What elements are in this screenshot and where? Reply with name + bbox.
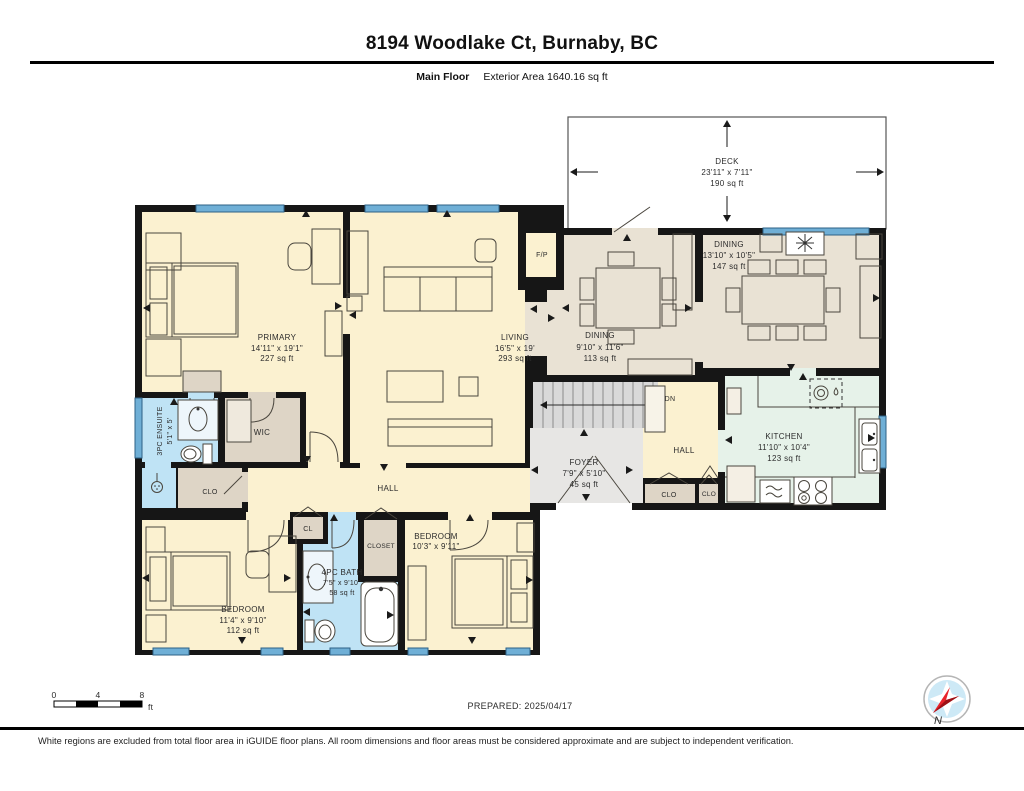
ensuite-toilet (181, 444, 212, 464)
kitchen-dims: 11'10" x 10'4" (758, 443, 810, 452)
bath-area: 58 sq ft (329, 590, 354, 597)
fireplace-label: F/P (536, 252, 548, 259)
foyer-dims: 7'9" x 5'10" (562, 469, 605, 478)
living-area: 293 sq ft (498, 354, 532, 363)
scale-tick-0: 0 (51, 690, 56, 700)
bathtub (361, 582, 398, 646)
compass-north-label: N (934, 715, 942, 727)
footer-divider (0, 727, 1024, 730)
prepared-date: PREPARED: 2025/04/17 (468, 701, 573, 711)
deck-dims: 23'11" x 7'11" (701, 168, 752, 177)
ceiling-fan-icon (786, 232, 824, 255)
hall-main-label: HALL (377, 484, 398, 493)
bedroom-left-area: 112 sq ft (227, 626, 260, 635)
shower-floor (142, 468, 176, 508)
primary-dims: 14'11" x 19'1" (251, 344, 303, 353)
bath-toilet (305, 620, 335, 642)
ensuite-dims: 5'1" x 5' (167, 418, 174, 445)
wic-label: WIC (254, 428, 270, 437)
compass-icon: N (924, 676, 970, 727)
bedroom-left-label: BEDROOM (221, 605, 264, 614)
clo-left-label: CLO (202, 489, 218, 496)
dining-large-label: DINING (714, 240, 744, 249)
bath-dims: 7'5" x 9'10" (323, 580, 361, 587)
dining-small-label: DINING (585, 331, 615, 340)
clo-left-floor (178, 468, 242, 508)
stairs-dn-label: DN (665, 396, 676, 403)
scale-unit: ft (148, 702, 154, 712)
scale-bar: 0 4 8 ft (51, 690, 153, 712)
floor-plan-page: 8194 Woodlake Ct, Burnaby, BC Main Floor… (0, 0, 1024, 791)
kitchen-label: KITCHEN (765, 432, 802, 441)
disclaimer-text: White regions are excluded from total fl… (38, 736, 988, 746)
scale-tick-4: 4 (95, 690, 100, 700)
living-label: LIVING (501, 333, 529, 342)
clo-b-label: CLO (702, 491, 716, 498)
deck-label: DECK (715, 157, 739, 166)
bath-label: 4PC BATH (322, 568, 363, 577)
bedroom-left-dims: 11'4" x 9'10" (219, 616, 266, 625)
deck-area: 190 sq ft (710, 179, 744, 188)
ensuite-label: 3PC ENSUITE (157, 406, 164, 455)
dining-small-area: 113 sq ft (584, 354, 617, 363)
living-floor (350, 212, 525, 463)
foyer-label: FOYER (569, 458, 598, 467)
clo-a-label: CLO (661, 492, 677, 499)
living-dims: 16'5" x 19' (495, 344, 535, 353)
floor-plan-drawing: DECK 23'11" x 7'11" 190 sq ft PRIMARY 14… (0, 0, 1024, 791)
closet-label: CLOSET (367, 543, 395, 550)
wic-furniture (227, 400, 251, 442)
dining-large-area: 147 sq ft (712, 262, 746, 271)
primary-area: 227 sq ft (260, 354, 294, 363)
kitchen-area: 123 sq ft (767, 454, 801, 463)
stove-icon (794, 477, 832, 505)
bedroom-right-dims: 10'3" x 9'11" (412, 542, 459, 551)
scale-tick-8: 8 (139, 690, 144, 700)
hall-right-label: HALL (673, 446, 694, 455)
hall-right-floor2 (643, 428, 658, 478)
bedroom-right-label: BEDROOM (414, 532, 457, 541)
stair-landing (645, 386, 665, 432)
dining-small-dims: 9'10" x 11'6" (576, 343, 623, 352)
primary-label: PRIMARY (258, 333, 297, 342)
foyer-area: 45 sq ft (570, 480, 599, 489)
kitchen-sink (859, 419, 880, 473)
dining-large-dims: 13'10" x 10'5" (703, 251, 756, 260)
oven-icon (760, 480, 790, 503)
cl-label: CL (303, 526, 313, 533)
